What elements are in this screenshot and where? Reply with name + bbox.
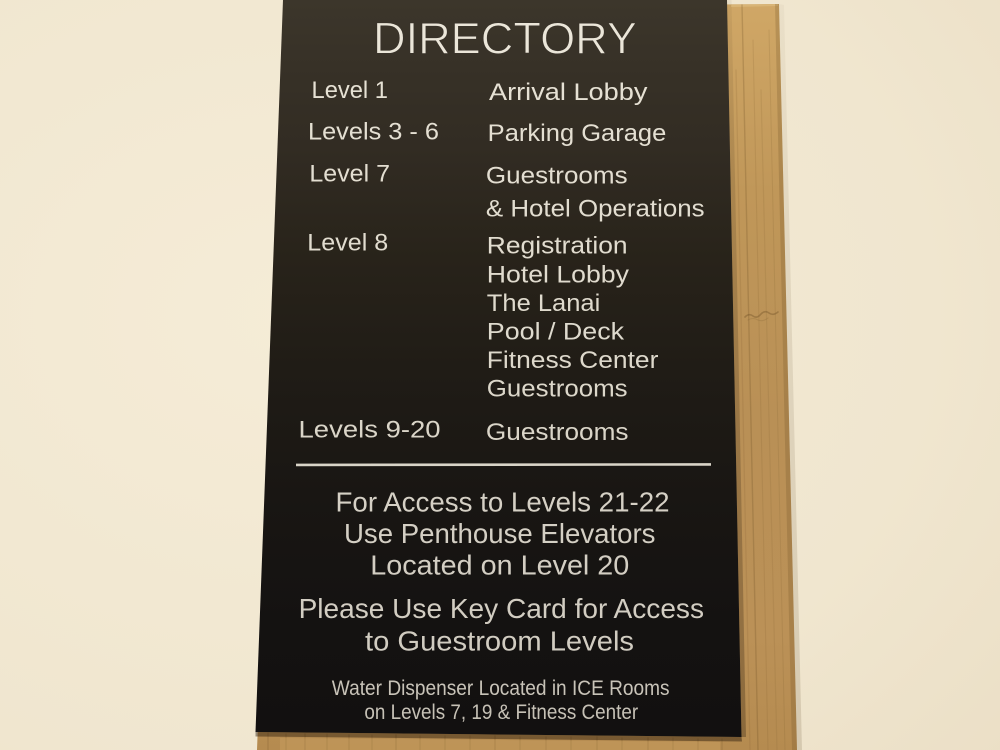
svg-text:& Hotel Operations: & Hotel Operations — [486, 196, 705, 223]
svg-text:Level 1: Level 1 — [312, 77, 389, 104]
svg-text:to Guestroom Levels: to Guestroom Levels — [365, 626, 634, 657]
svg-text:Please Use Key Card for Access: Please Use Key Card for Access — [299, 593, 704, 624]
svg-text:Guestrooms: Guestrooms — [486, 163, 628, 190]
svg-text:Water Dispenser Located in ICE: Water Dispenser Located in ICE Rooms — [332, 677, 670, 700]
svg-text:Level 8: Level 8 — [307, 229, 388, 256]
svg-text:Fitness Center: Fitness Center — [487, 347, 659, 374]
svg-text:Guestrooms: Guestrooms — [487, 376, 628, 403]
svg-text:The Lanai: The Lanai — [487, 290, 601, 317]
svg-text:DIRECTORY: DIRECTORY — [373, 15, 637, 64]
svg-text:Hotel Lobby: Hotel Lobby — [487, 261, 630, 288]
svg-text:Levels 3 - 6: Levels 3 - 6 — [308, 119, 439, 146]
svg-text:Guestrooms: Guestrooms — [486, 419, 629, 446]
svg-text:For Access to Levels 21-22: For Access to Levels 21-22 — [336, 487, 670, 518]
svg-text:Arrival Lobby: Arrival Lobby — [489, 79, 648, 106]
svg-text:Pool / Deck: Pool / Deck — [487, 319, 625, 346]
svg-text:Level 7: Level 7 — [309, 161, 390, 188]
svg-text:Use Penthouse Elevators: Use Penthouse Elevators — [344, 518, 656, 549]
svg-text:on Levels 7, 19 & Fitness Cent: on Levels 7, 19 & Fitness Center — [364, 701, 638, 724]
svg-text:Parking Garage: Parking Garage — [488, 120, 667, 147]
svg-text:Located on Level 20: Located on Level 20 — [370, 550, 629, 581]
svg-text:Registration: Registration — [487, 233, 628, 260]
svg-text:Levels 9-20: Levels 9-20 — [299, 417, 441, 444]
